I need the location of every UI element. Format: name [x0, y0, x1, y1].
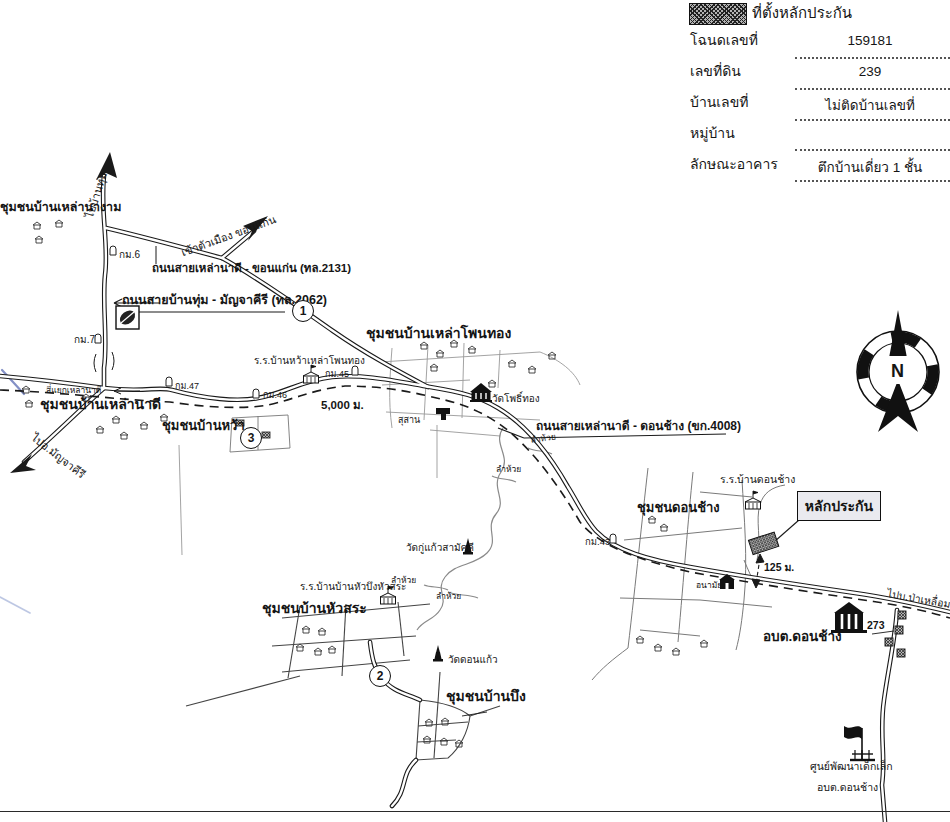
- cemetery-icon: [436, 408, 450, 420]
- dotted-rule: [795, 88, 950, 90]
- km43-label: กม.43: [585, 537, 610, 547]
- km6-label: กม.6: [119, 250, 140, 261]
- circled-number-1: 1: [292, 300, 314, 322]
- dotted-rule: [795, 119, 950, 121]
- legend-field-value-building-type: ตึกบ้านเดี่ยว 1 ชั้น: [795, 156, 945, 178]
- milestone-icon: [166, 377, 172, 386]
- community-label-lao-phon-thong: ชุมชนบ้านเหล่าโพนทอง: [366, 326, 511, 341]
- milestone-icon: [95, 334, 101, 343]
- dotted-rule: [795, 57, 950, 59]
- route-273-label: 273: [867, 620, 885, 631]
- community-label-don-chang: ชุมชนดอนช้าง: [637, 501, 720, 515]
- health-center-label: อนามัย: [696, 581, 722, 590]
- sao-don-chang-label: อบต.ดอนช้าง: [763, 630, 842, 644]
- page-bottom-rule: [0, 811, 950, 812]
- milestone-icon: [352, 366, 358, 375]
- collateral-swatch-hatched: [689, 3, 747, 25]
- community-label-hua-sa: ชุมชนบ้านหัวสระ: [262, 601, 367, 616]
- school-label-hua-bueng-hua-sa: ร.ร.บ้านบ้านหัวบึงหัวสระ: [300, 582, 406, 593]
- collateral-parcel-hatched: [748, 532, 778, 555]
- stupa-icon-wat-don-kaeo: [433, 645, 443, 662]
- km45-label: กม.45: [325, 370, 349, 379]
- circled-number-3: 3: [240, 427, 262, 449]
- temple-label-wat-ku-kaeo: วัดกู่แก้วสามัคคี: [406, 543, 474, 554]
- school-label-don-chang: ร.ร.บ้านดอนช้าง: [720, 474, 795, 485]
- community-label-ban-bueng: ชุมชนบ้านบึง: [446, 689, 526, 704]
- milestone-icon: [110, 246, 116, 255]
- survey-map-page: ที่ตั้งหลักประกัน โฉนดเลขที่ 159181 เลขท…: [0, 0, 950, 822]
- legend-title: ที่ตั้งหลักประกัน: [752, 5, 852, 21]
- legend-field-value-parcel: 239: [795, 64, 945, 79]
- legend-field-label-building-type: ลักษณะอาคาร: [690, 157, 778, 172]
- community-label-lao-na-ngam: ชุมชนบ้านเหล่านางาม: [0, 201, 121, 214]
- road-label-2131: ถนนสายเหล่านาดี - ขอนแก่น (ทล.2131): [152, 262, 351, 274]
- km7-label: กม.7: [74, 335, 95, 346]
- legend-field-label-village: หมู่บ้าน: [690, 126, 735, 141]
- child-center-label-line1: ศูนย์พัฒนาเด็กเล็ก: [810, 761, 893, 772]
- legend-field-value-deed: 159181: [795, 33, 945, 48]
- stream-label-4: ลำห้วย: [436, 592, 461, 601]
- measure-125m-arrow: [752, 554, 764, 588]
- junction-label: สี่แยกเหล่านาดี: [46, 386, 101, 395]
- school-icon: [303, 365, 319, 383]
- pen-marks: [0, 370, 30, 613]
- school-label-wa-lao-phon-thong: ร.ร.บ้านหว้าเหล่าโพนทอง: [254, 356, 365, 367]
- dotted-rule: [795, 180, 950, 182]
- legend-field-label-house-no: บ้านเลขที่: [690, 95, 748, 110]
- stream-label-2: ลำห้วย: [496, 465, 521, 474]
- distance-5000m-label: 5,000 ม.: [321, 399, 364, 411]
- temple-label-wat-pho-thong: วัดโพธิ์ทอง: [492, 394, 540, 405]
- circled-number-2: 2: [369, 665, 391, 687]
- legend-field-label-parcel: เลขที่ดิน: [690, 64, 741, 79]
- legend-field-value-house-no: ไม่ติดบ้านเลขที่: [795, 94, 945, 116]
- child-center-flag-icon: [844, 726, 875, 760]
- km47-label: กม.47: [175, 382, 199, 391]
- school-icon: [745, 491, 761, 509]
- collateral-callout-box: หลักประกัน: [797, 491, 881, 521]
- child-center-label-line2: อบต.ดอนช้าง: [817, 782, 878, 793]
- community-label-ban-wa: ชุมชนบ้านหว้า: [162, 419, 245, 433]
- legend-field-label-deed: โฉนดเลขที่: [690, 33, 758, 48]
- cemetery-label: สุสาน: [398, 416, 420, 425]
- compass-north-label: N: [891, 362, 904, 381]
- km46-label: กม.46: [263, 391, 287, 400]
- culvert-symbol: [116, 306, 139, 329]
- village-street-grids: [179, 343, 580, 555]
- dotted-rule: [795, 149, 950, 151]
- community-label-lao-na-di: ชุมชนบ้านเหล่านาดี: [40, 397, 161, 412]
- milestone-icon: [610, 534, 616, 543]
- distance-125m-label: 125 ม.: [764, 562, 794, 573]
- milestone-icon: [253, 389, 259, 398]
- temple-label-wat-don-kaeo: วัดดอนแก้ว: [448, 655, 498, 666]
- road-label-4008: ถนนสายเหล่านาดี - ดอนช้าง (ขก.4008): [536, 420, 741, 433]
